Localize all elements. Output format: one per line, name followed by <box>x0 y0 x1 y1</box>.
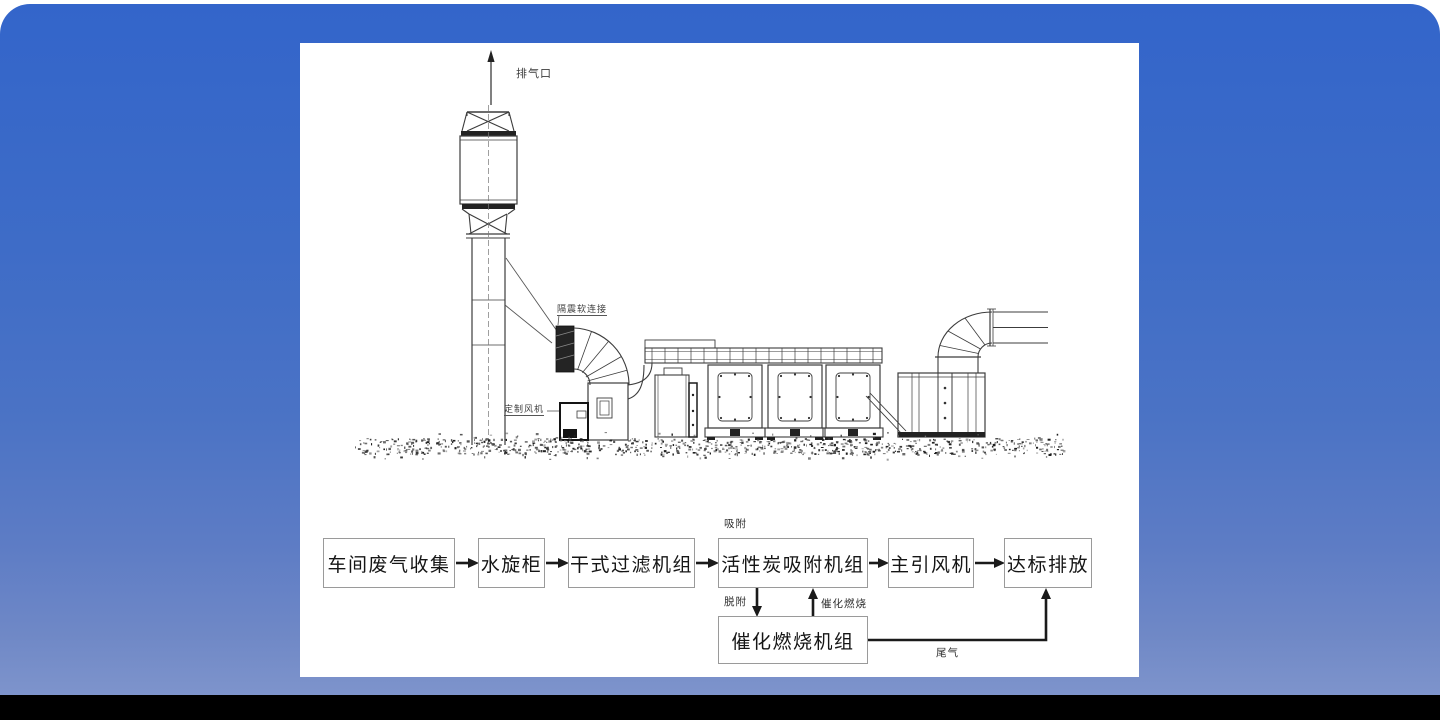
flow-node-workshop-exhaust-collection: 车间废气收集 <box>323 538 455 588</box>
riser-duct <box>628 363 652 399</box>
flex-connection-label: 隔震软连接 <box>557 302 607 315</box>
flow-node-dry-filter-unit: 干式过滤机组 <box>568 538 695 588</box>
custom-fan-label: 定制风机 <box>504 402 544 415</box>
outlet-duct-bend <box>935 309 1048 373</box>
flow-node-catalytic-combustion-unit: 催化燃烧机组 <box>718 616 868 664</box>
exhaust-stack <box>460 50 517 445</box>
flow-node-main-draft-fan: 主引风机 <box>888 538 974 588</box>
main-fan-housing <box>898 373 985 437</box>
flex-connector <box>556 315 574 372</box>
adsorption-flow-label: 吸附 <box>724 516 747 531</box>
filter-tank <box>655 368 697 437</box>
catalytic-combustion-flow-label: 催化燃烧 <box>821 596 867 611</box>
adsorption-box-3 <box>823 365 883 440</box>
exhaust-outlet-label: 排气口 <box>516 65 552 81</box>
duct-elbow-left <box>574 328 629 385</box>
guy-wires <box>505 258 557 343</box>
flow-node-compliant-discharge: 达标排放 <box>1004 538 1092 588</box>
horizontal-duct <box>645 340 882 363</box>
custom-fan-unit <box>547 383 628 440</box>
flow-node-activated-carbon-adsorption-unit: 活性炭吸附机组 <box>718 538 868 588</box>
diagram-panel: 排气口 隔震软连接 定制风机 车间废气收集 水旋柜 干式过滤机组 活性炭吸附机组… <box>300 43 1139 677</box>
flow-node-water-spray-cabinet: 水旋柜 <box>478 538 545 588</box>
adsorption-box-2 <box>765 365 825 440</box>
desorption-flow-label: 脱附 <box>724 594 747 609</box>
tail-gas-flow-label: 尾气 <box>936 645 959 660</box>
screenshot-canvas: 排气口 隔震软连接 定制风机 车间废气收集 水旋柜 干式过滤机组 活性炭吸附机组… <box>0 0 1440 720</box>
adsorption-boxes <box>705 365 883 440</box>
stack-arrow-head <box>487 50 494 62</box>
bottom-black-bar <box>0 695 1440 720</box>
adsorption-box-1 <box>705 365 765 440</box>
